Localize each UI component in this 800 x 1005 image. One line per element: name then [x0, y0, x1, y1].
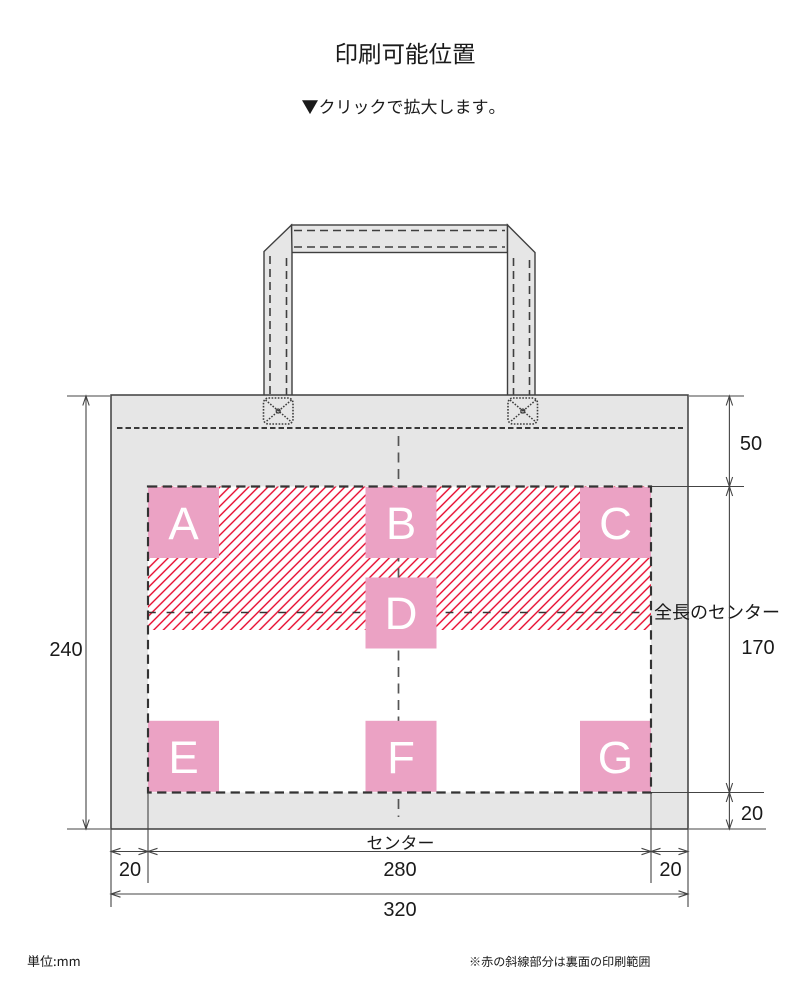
svg-text:E: E	[168, 732, 198, 783]
svg-text:※赤の斜線部分は裏面の印刷範囲: ※赤の斜線部分は裏面の印刷範囲	[469, 953, 650, 970]
svg-text:センター: センター	[367, 829, 435, 854]
svg-text:280: 280	[383, 859, 416, 881]
svg-text:印刷可能位置: 印刷可能位置	[335, 36, 476, 70]
svg-text:G: G	[598, 732, 633, 783]
svg-text:170: 170	[741, 637, 774, 659]
svg-text:20: 20	[119, 859, 141, 881]
svg-text:D: D	[385, 588, 418, 639]
svg-text:20: 20	[741, 803, 763, 825]
svg-text:F: F	[387, 732, 415, 783]
svg-text:240: 240	[49, 639, 82, 661]
svg-text:全長のセンター: 全長のセンター	[654, 599, 780, 625]
svg-text:単位:mm: 単位:mm	[27, 951, 81, 970]
svg-text:C: C	[599, 498, 632, 549]
svg-text:B: B	[386, 498, 416, 549]
svg-text:20: 20	[659, 859, 681, 881]
svg-text:A: A	[168, 498, 199, 549]
svg-text:▼クリックで拡大します。: ▼クリックで拡大します。	[302, 93, 506, 118]
svg-text:320: 320	[383, 899, 416, 921]
svg-text:50: 50	[740, 433, 762, 455]
